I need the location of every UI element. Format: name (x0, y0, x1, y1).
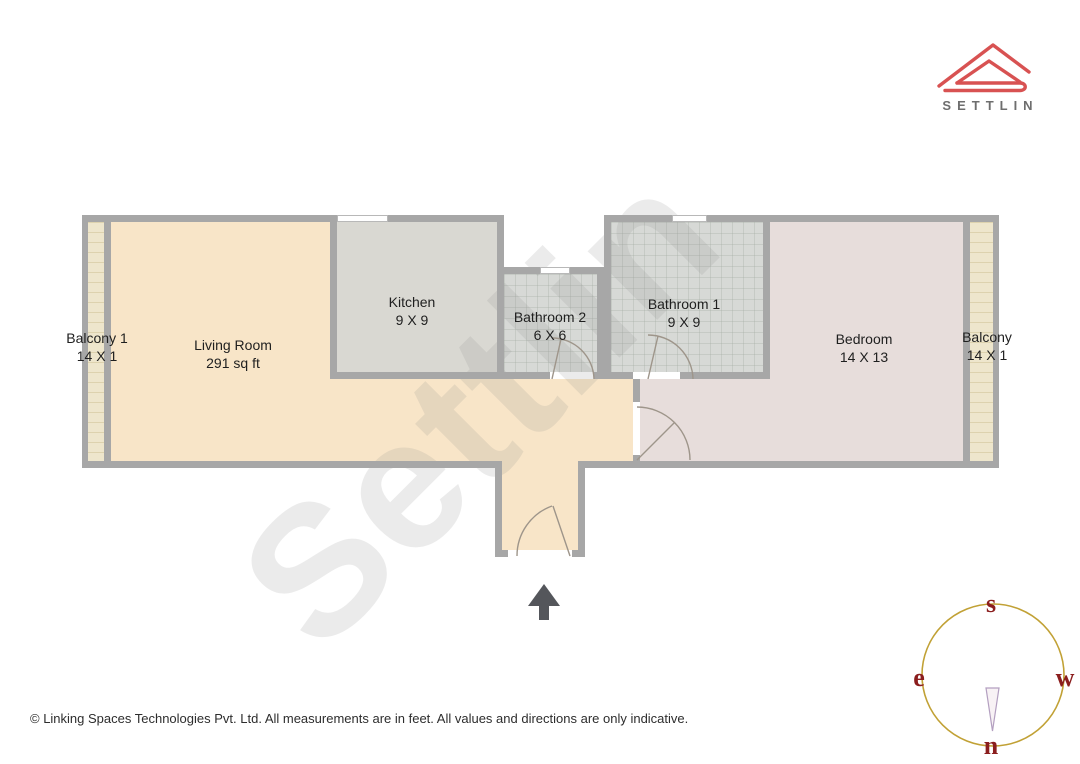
window-marker (540, 267, 570, 274)
wall-segment (495, 550, 508, 557)
compass-letter-bottom: n (984, 731, 999, 760)
room-name: Balcony (962, 328, 1012, 346)
room-dims: 9 X 9 (389, 311, 436, 329)
room-dims: 14 X 1 (962, 346, 1012, 364)
room-name: Bathroom 2 (514, 308, 586, 326)
wall-segment (604, 215, 611, 379)
room-name: Bathroom 1 (648, 295, 720, 313)
room-label-balcony1: Balcony 1 14 X 1 (66, 329, 127, 365)
window-marker (337, 215, 388, 222)
floor-plan-page: Settlin (0, 0, 1080, 764)
room-label-bathroom1: Bathroom 1 9 X 9 (648, 295, 720, 331)
hallway-floor (330, 379, 633, 461)
foyer-floor (502, 461, 578, 550)
wall-segment (763, 215, 770, 379)
compass-needle-icon (986, 688, 999, 731)
wall-segment (82, 461, 502, 468)
room-name: Bedroom (836, 330, 893, 348)
wall-segment (578, 461, 999, 468)
room-label-kitchen: Kitchen 9 X 9 (389, 293, 436, 329)
wall-segment (497, 215, 504, 379)
room-name: Balcony 1 (66, 329, 127, 347)
room-label-bathroom2: Bathroom 2 6 X 6 (514, 308, 586, 344)
room-name: Kitchen (389, 293, 436, 311)
compass-rose: s e w n (913, 589, 1074, 760)
compass-letter-left: e (913, 663, 925, 692)
window-marker (672, 215, 707, 222)
copyright-note: © Linking Spaces Technologies Pvt. Ltd. … (30, 711, 688, 726)
room-dims: 14 X 13 (836, 348, 893, 366)
compass-letter-right: w (1056, 663, 1075, 692)
compass-letter-top: s (986, 589, 996, 618)
wall-segment (594, 372, 633, 379)
bedroom-entry-floor (640, 379, 770, 461)
wall-segment (597, 267, 604, 379)
wall-segment (633, 455, 640, 461)
wall-segment (330, 215, 337, 379)
wall-segment (578, 461, 585, 557)
wall-segment (604, 215, 999, 222)
brand-logo-icon (939, 45, 1029, 91)
room-label-balcony2: Balcony 14 X 1 (962, 328, 1012, 364)
wall-segment (633, 379, 640, 402)
brand-wordmark: SETTLIN (928, 98, 1053, 113)
wall-segment (680, 372, 770, 379)
room-label-bedroom: Bedroom 14 X 13 (836, 330, 893, 366)
room-dims: 291 sq ft (194, 354, 272, 372)
room-label-living: Living Room 291 sq ft (194, 336, 272, 372)
wall-segment (572, 550, 585, 557)
room-dims: 14 X 1 (66, 347, 127, 365)
wall-segment (495, 461, 502, 557)
room-dims: 9 X 9 (648, 313, 720, 331)
wall-segment (330, 372, 550, 379)
room-dims: 6 X 6 (514, 326, 586, 344)
compass-ring (922, 604, 1064, 746)
room-name: Living Room (194, 336, 272, 354)
wall-segment (82, 215, 504, 222)
entry-arrow-icon (528, 584, 560, 620)
